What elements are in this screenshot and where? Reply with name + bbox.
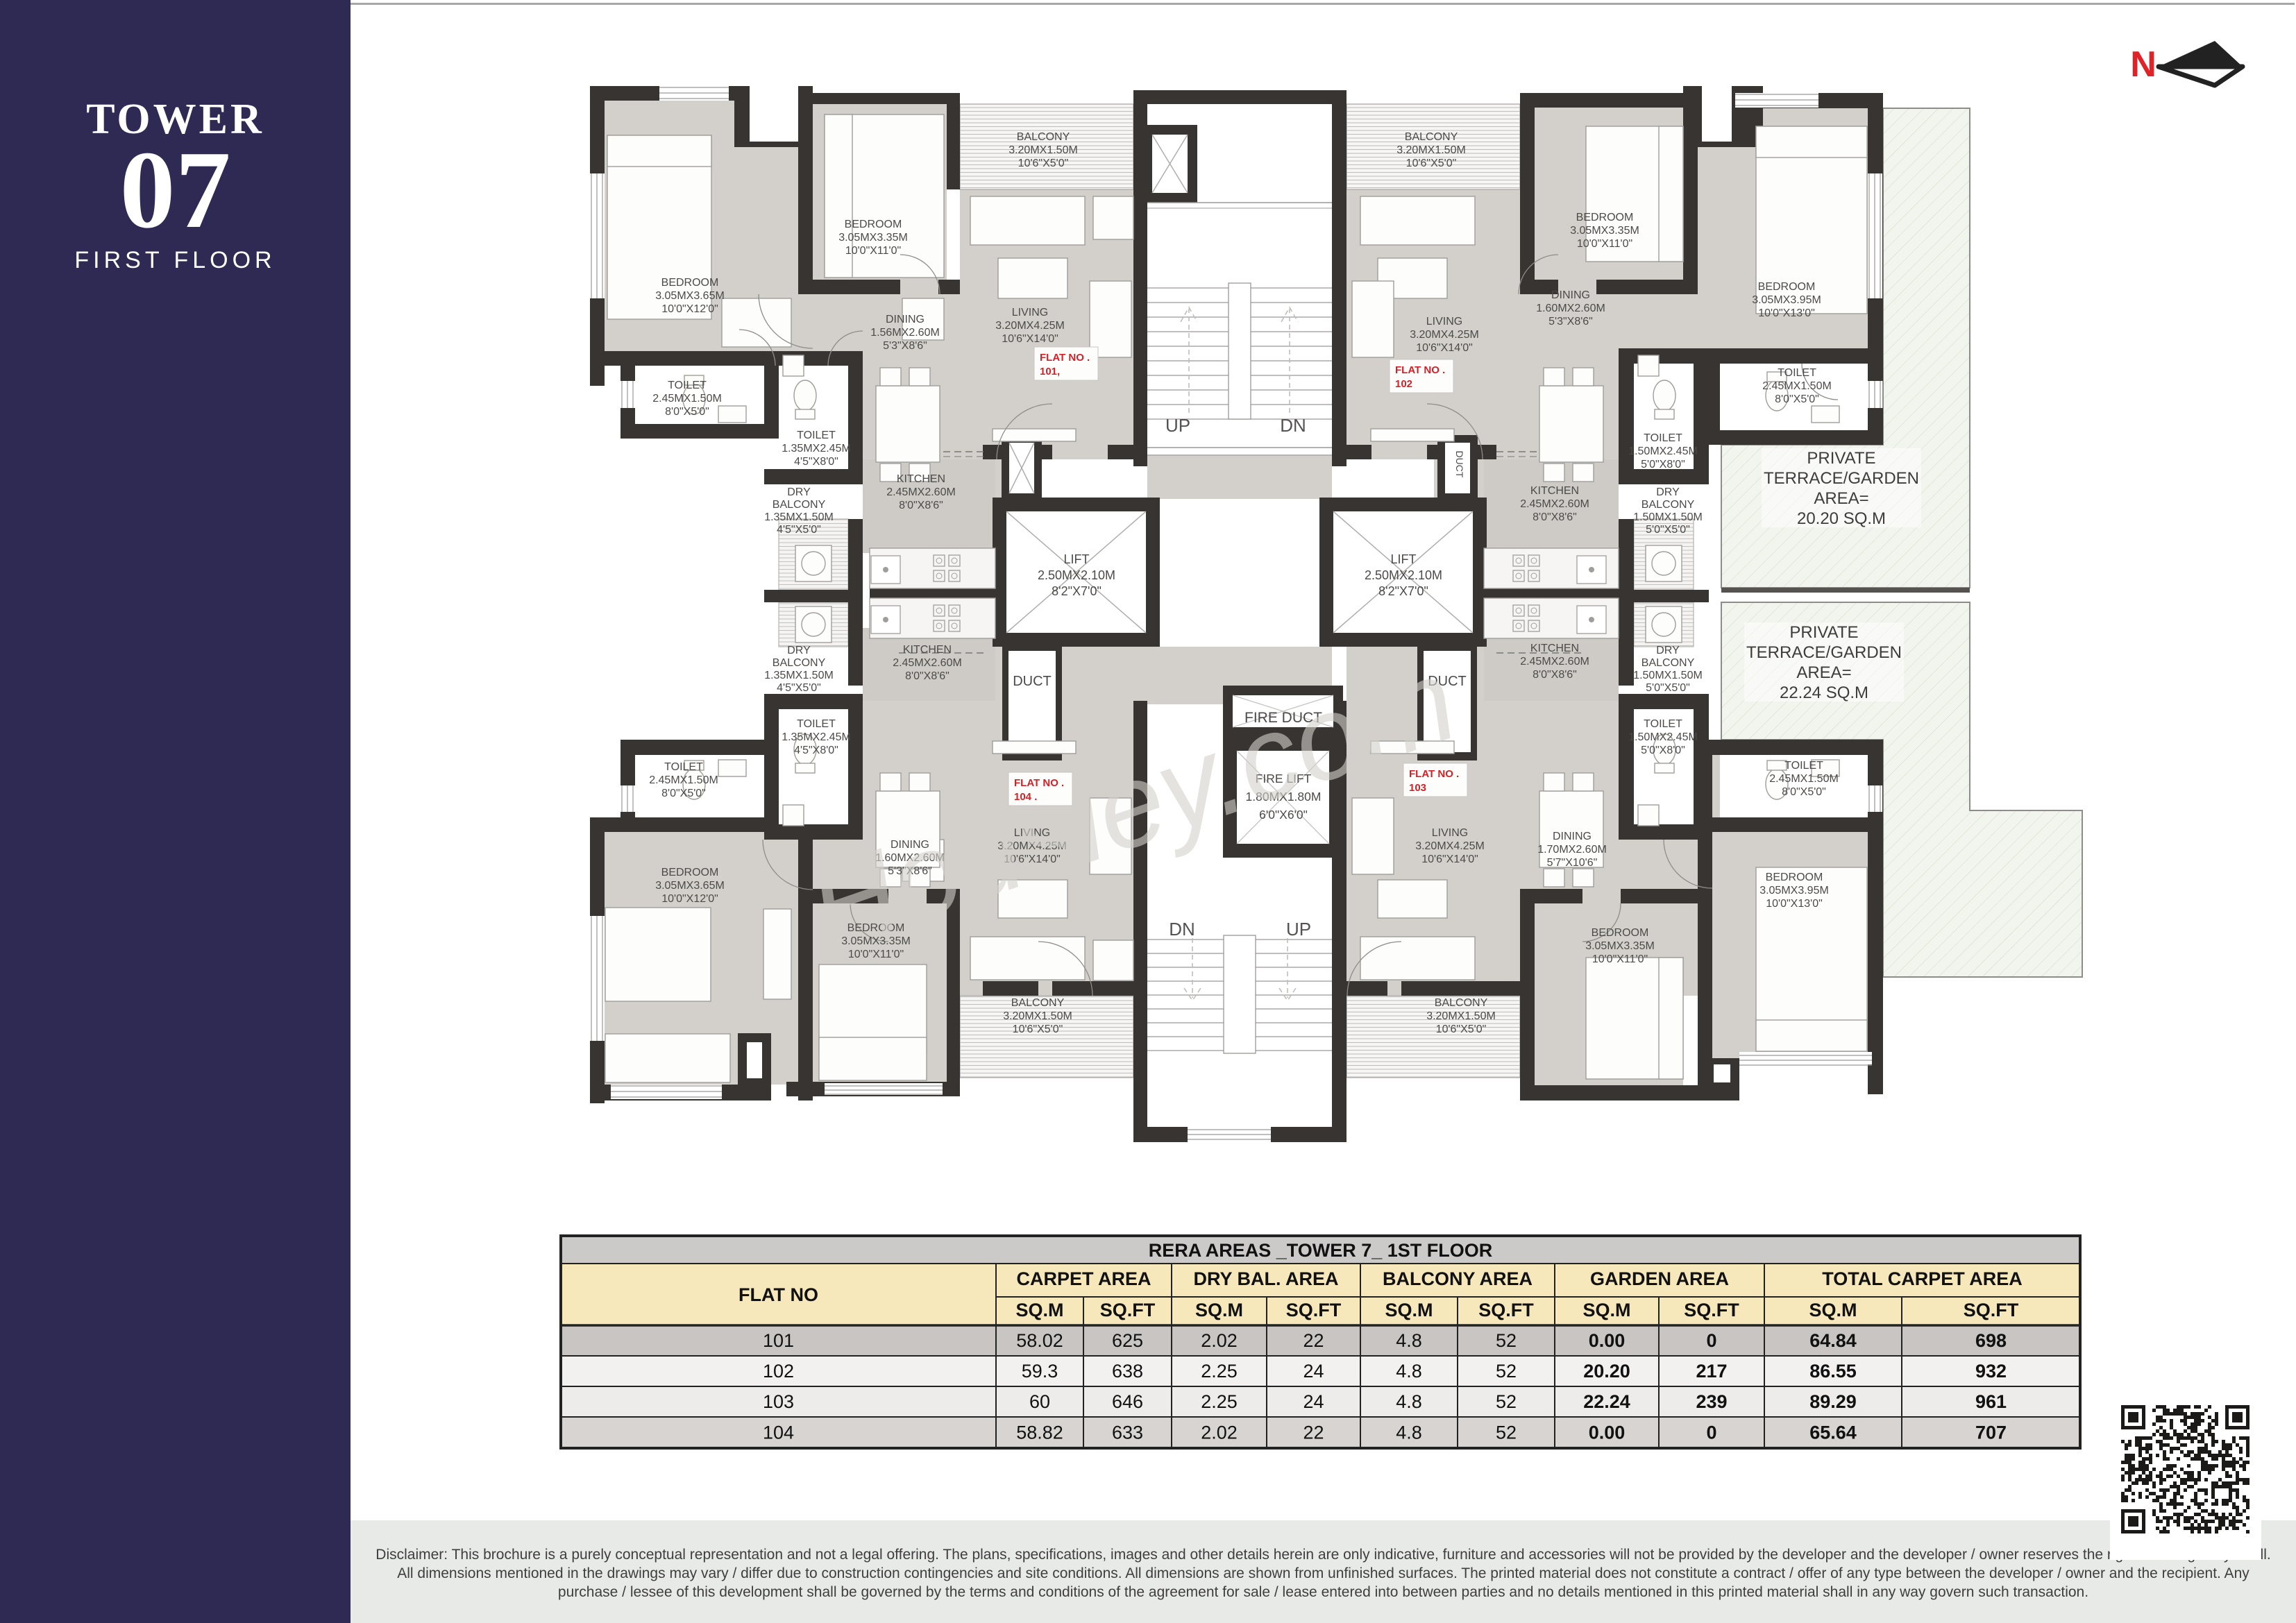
svg-text:2.45MX2.60M: 2.45MX2.60M [1520,656,1589,668]
svg-text:N: N [2130,44,2156,85]
svg-text:3.20MX4.25M: 3.20MX4.25M [1415,840,1485,852]
svg-text:103: 103 [763,1391,794,1412]
svg-text:2.25: 2.25 [1201,1391,1238,1412]
svg-text:TOILET: TOILET [797,430,836,441]
svg-text:2.45MX1.50M: 2.45MX1.50M [1762,380,1832,392]
svg-text:86.55: 86.55 [1809,1361,1857,1382]
svg-text:DINING: DINING [1551,289,1590,301]
svg-text:DRY: DRY [1656,486,1680,498]
svg-text:BEDROOM: BEDROOM [1758,281,1816,293]
svg-text:5'0"X5'0": 5'0"X5'0" [1646,524,1690,536]
svg-text:BALCONY: BALCONY [1017,131,1070,143]
svg-text:3.05MX3.35M: 3.05MX3.35M [1570,225,1639,237]
svg-text:10'6"X5'0": 10'6"X5'0" [1436,1023,1487,1035]
svg-text:2.45MX1.50M: 2.45MX1.50M [1769,773,1839,785]
svg-text:22.24: 22.24 [1583,1391,1630,1412]
svg-text:60: 60 [1029,1391,1050,1412]
svg-text:DUCT: DUCT [1013,674,1052,689]
svg-text:633: 633 [1112,1422,1143,1443]
svg-text:698: 698 [1975,1330,2007,1351]
svg-text:4'5"X8'0": 4'5"X8'0" [794,745,838,756]
svg-text:8'0"X5'0": 8'0"X5'0" [1775,393,1819,405]
svg-text:1.70MX2.60M: 1.70MX2.60M [1537,844,1607,856]
svg-text:TOILET: TOILET [1644,432,1682,444]
svg-text:DRY: DRY [787,486,811,498]
svg-text:LIVING: LIVING [1432,827,1468,839]
svg-text:10'0"X13'0": 10'0"X13'0" [1766,898,1823,910]
svg-text:8'0"X5'0": 8'0"X5'0" [665,406,709,418]
svg-text:SQ.FT: SQ.FT [1964,1300,2019,1320]
svg-text:2.02: 2.02 [1201,1422,1238,1443]
svg-text:932: 932 [1975,1361,2007,1382]
svg-text:BEDROOM: BEDROOM [1766,872,1823,883]
svg-text:707: 707 [1975,1422,2007,1443]
svg-text:DN: DN [1280,415,1306,436]
svg-text:10'0"X11'0": 10'0"X11'0" [1577,238,1632,250]
svg-text:DINING: DINING [886,314,925,325]
svg-text:TOILET: TOILET [668,380,707,391]
svg-text:961: 961 [1975,1391,2007,1412]
svg-text:GARDEN AREA: GARDEN AREA [1590,1268,1729,1289]
svg-text:TOTAL CARPET AREA: TOTAL CARPET AREA [1822,1268,2023,1289]
svg-text:3.05MX3.35M: 3.05MX3.35M [838,232,908,244]
svg-text:TOILET: TOILET [664,761,703,773]
svg-text:10'6"X14'0": 10'6"X14'0" [1002,333,1058,345]
svg-text:8'0"X8'6": 8'0"X8'6" [1533,669,1577,681]
svg-text:1.60MX2.60M: 1.60MX2.60M [1536,303,1605,314]
svg-text:0: 0 [1706,1330,1716,1351]
svg-text:52: 52 [1496,1330,1517,1351]
svg-text:SQ.M: SQ.M [1809,1300,1857,1320]
svg-text:SQ.M: SQ.M [1015,1300,1063,1320]
svg-text:4'5"X5'0": 4'5"X5'0" [777,524,821,536]
svg-text:PRIVATE: PRIVATE [1789,623,1858,642]
svg-text:3.05MX3.65M: 3.05MX3.65M [655,290,725,302]
svg-text:UP: UP [1165,415,1190,436]
svg-text:8'0"X5'0": 8'0"X5'0" [1782,786,1826,798]
svg-text:3.20MX4.25M: 3.20MX4.25M [1410,329,1479,341]
svg-text:1.56MX2.60M: 1.56MX2.60M [870,327,940,339]
svg-text:BEDROOM: BEDROOM [661,277,719,289]
svg-text:TOILET: TOILET [1644,718,1682,730]
svg-text:0.00: 0.00 [1589,1422,1626,1443]
svg-text:DUCT: DUCT [1454,451,1465,478]
svg-text:3.20MX1.50M: 3.20MX1.50M [1008,144,1078,156]
svg-text:TERRACE/GARDEN: TERRACE/GARDEN [1764,469,1919,488]
svg-text:5'7"X10'6": 5'7"X10'6" [1547,857,1598,869]
svg-text:89.29: 89.29 [1809,1391,1857,1412]
svg-text:4'5"X8'0": 4'5"X8'0" [794,456,838,468]
svg-text:1.35MX2.45M: 1.35MX2.45M [782,443,851,454]
svg-text:DINING: DINING [1553,831,1592,842]
svg-text:AREA=: AREA= [1814,489,1868,508]
svg-text:SQ.FT: SQ.FT [1100,1300,1156,1320]
svg-text:1.35MX1.50M: 1.35MX1.50M [764,511,834,523]
svg-text:5'3"X8'6": 5'3"X8'6" [883,340,927,352]
svg-text:24: 24 [1303,1361,1324,1382]
svg-text:24: 24 [1303,1391,1324,1412]
svg-text:1.35MX2.45M: 1.35MX2.45M [782,731,851,743]
svg-text:KITCHEN: KITCHEN [903,644,952,656]
svg-text:BALCONY: BALCONY [1641,657,1695,669]
svg-text:3.20MX1.50M: 3.20MX1.50M [1396,144,1466,156]
svg-text:10'0"X12'0": 10'0"X12'0" [661,893,718,905]
svg-text:10'0"X12'0": 10'0"X12'0" [661,303,718,315]
svg-text:BALCONY: BALCONY [1641,499,1695,511]
svg-text:20.20: 20.20 [1583,1361,1630,1382]
svg-text:52: 52 [1496,1422,1517,1443]
svg-text:8'0"X5'0": 8'0"X5'0" [661,788,706,799]
svg-text:DRY BAL. AREA: DRY BAL. AREA [1193,1268,1338,1289]
svg-text:BEDROOM: BEDROOM [1576,212,1634,223]
svg-text:PRIVATE: PRIVATE [1807,449,1875,468]
svg-text:BALCONY: BALCONY [773,499,826,511]
svg-text:SQ.FT: SQ.FT [1478,1300,1534,1320]
svg-text:FLAT NO .: FLAT NO . [1395,364,1445,376]
svg-text:52: 52 [1496,1391,1517,1412]
svg-text:5'0"X8'0": 5'0"X8'0" [1641,745,1685,756]
svg-text:SQ.M: SQ.M [1385,1300,1433,1320]
svg-text:1.50MX2.45M: 1.50MX2.45M [1628,731,1698,743]
svg-text:217: 217 [1696,1361,1727,1382]
svg-text:2.50MX2.10M: 2.50MX2.10M [1038,568,1115,582]
svg-text:59.3: 59.3 [1022,1361,1058,1382]
svg-text:104: 104 [763,1422,794,1443]
svg-text:BALCONY: BALCONY [1011,997,1065,1009]
svg-text:BEDROOM: BEDROOM [845,219,902,230]
svg-text:58.02: 58.02 [1016,1330,1063,1351]
svg-text:10'6"X5'0": 10'6"X5'0" [1018,158,1069,169]
svg-text:5'0"X8'0": 5'0"X8'0" [1641,459,1685,470]
svg-text:LIFT: LIFT [1063,552,1089,566]
svg-text:8'0"X8'6": 8'0"X8'6" [1533,511,1577,523]
svg-text:65.64: 65.64 [1809,1422,1857,1443]
svg-text:4.8: 4.8 [1396,1330,1422,1351]
svg-text:KITCHEN: KITCHEN [1530,643,1579,654]
svg-text:22: 22 [1303,1422,1324,1443]
svg-text:KITCHEN: KITCHEN [897,473,945,485]
svg-text:TOILET: TOILET [1778,367,1816,379]
svg-text:646: 646 [1112,1391,1143,1412]
svg-text:10'0"X11'0": 10'0"X11'0" [1592,953,1648,965]
svg-text:CARPET AREA: CARPET AREA [1016,1268,1151,1289]
svg-text:3.20MX4.25M: 3.20MX4.25M [995,320,1065,332]
svg-text:FLAT NO .: FLAT NO . [1040,352,1090,364]
svg-text:103: 103 [1409,782,1426,794]
svg-text:3.05MX3.95M: 3.05MX3.95M [1752,294,1821,306]
svg-text:22.24 SQ.M: 22.24 SQ.M [1780,683,1868,702]
svg-text:BALCONY: BALCONY [1435,997,1488,1009]
svg-text:4.8: 4.8 [1396,1361,1422,1382]
svg-text:52: 52 [1496,1361,1517,1382]
svg-text:2.45MX1.50M: 2.45MX1.50M [649,774,718,786]
svg-text:2.45MX2.60M: 2.45MX2.60M [886,486,956,498]
svg-text:0.00: 0.00 [1589,1330,1626,1351]
svg-text:102: 102 [1395,378,1412,390]
svg-text:10'6"X5'0": 10'6"X5'0" [1406,158,1457,169]
svg-text:KITCHEN: KITCHEN [1530,485,1579,497]
svg-text:2.25: 2.25 [1201,1361,1238,1382]
svg-text:SQ.M: SQ.M [1195,1300,1243,1320]
svg-text:3.05MX3.35M: 3.05MX3.35M [1585,940,1655,952]
svg-text:2.45MX1.50M: 2.45MX1.50M [652,393,722,405]
svg-text:3.20MX1.50M: 3.20MX1.50M [1426,1010,1496,1022]
svg-text:0: 0 [1706,1422,1716,1443]
svg-text:239: 239 [1696,1391,1727,1412]
svg-text:5'0"X5'0": 5'0"X5'0" [1646,682,1690,694]
svg-text:UP: UP [1286,919,1311,940]
svg-text:3.05MX3.95M: 3.05MX3.95M [1759,885,1829,897]
svg-text:SQ.FT: SQ.FT [1684,1300,1739,1320]
svg-text:638: 638 [1112,1361,1143,1382]
svg-text:DN: DN [1169,919,1195,940]
svg-text:TERRACE/GARDEN: TERRACE/GARDEN [1746,643,1902,662]
svg-text:BALCONY: BALCONY [773,657,826,669]
svg-text:10'0"X13'0": 10'0"X13'0" [1758,307,1815,319]
svg-text:1.50MX1.50M: 1.50MX1.50M [1633,511,1703,523]
svg-text:22: 22 [1303,1330,1324,1351]
svg-text:BEDROOM: BEDROOM [1592,927,1649,939]
svg-text:2.02: 2.02 [1201,1330,1238,1351]
svg-text:58.82: 58.82 [1016,1422,1063,1443]
svg-text:2.50MX2.10M: 2.50MX2.10M [1365,568,1442,582]
svg-text:3.05MX3.65M: 3.05MX3.65M [655,880,725,892]
svg-text:8'0"X8'6": 8'0"X8'6" [899,500,943,511]
svg-text:RERA AREAS _TOWER 7_ 1ST FLOO: RERA AREAS _TOWER 7_ 1ST FLOOR [1149,1240,1493,1261]
svg-text:DRY: DRY [787,645,811,656]
svg-text:DRY: DRY [1656,645,1680,656]
svg-text:TOILET: TOILET [797,718,836,730]
svg-text:1.35MX1.50M: 1.35MX1.50M [764,670,834,681]
svg-text:LIVING: LIVING [1426,316,1462,328]
svg-text:10'6"X14'0": 10'6"X14'0" [1421,853,1478,865]
svg-text:10'6"X5'0": 10'6"X5'0" [1013,1023,1063,1035]
svg-text:10'6"X14'0": 10'6"X14'0" [1416,342,1473,354]
svg-text:101: 101 [763,1330,794,1351]
svg-text:101,: 101, [1040,366,1060,377]
svg-text:1.50MX2.45M: 1.50MX2.45M [1628,445,1698,457]
svg-text:4.8: 4.8 [1396,1391,1422,1412]
svg-text:BALCONY AREA: BALCONY AREA [1383,1268,1533,1289]
svg-text:5'3"X8'6": 5'3"X8'6" [1548,316,1593,328]
svg-text:BALCONY: BALCONY [1405,131,1458,143]
svg-text:1.50MX1.50M: 1.50MX1.50M [1633,670,1703,681]
svg-text:FLAT NO: FLAT NO [738,1284,818,1305]
svg-text:2.45MX2.60M: 2.45MX2.60M [1520,498,1589,510]
svg-text:625: 625 [1112,1330,1143,1351]
svg-text:10'0"X11'0": 10'0"X11'0" [845,245,901,257]
svg-text:SQ.M: SQ.M [1582,1300,1630,1320]
svg-text:8'2"X7'0": 8'2"X7'0" [1378,584,1428,598]
svg-text:64.84: 64.84 [1809,1330,1857,1351]
svg-text:20.20 SQ.M: 20.20 SQ.M [1797,509,1886,528]
svg-text:3.20MX1.50M: 3.20MX1.50M [1003,1010,1072,1022]
svg-text:2.45MX2.60M: 2.45MX2.60M [893,657,962,669]
svg-text:BEDROOM: BEDROOM [661,867,719,878]
svg-text:SQ.FT: SQ.FT [1286,1300,1342,1320]
svg-text:8'2"X7'0": 8'2"X7'0" [1052,584,1101,598]
svg-text:4.8: 4.8 [1396,1422,1422,1443]
svg-text:TOILET: TOILET [1784,760,1823,772]
svg-text:102: 102 [763,1361,794,1382]
svg-text:8'0"X8'6": 8'0"X8'6" [905,670,949,682]
svg-text:LIVING: LIVING [1012,307,1048,318]
svg-text:4'5"X5'0": 4'5"X5'0" [777,682,821,694]
svg-text:LIFT: LIFT [1390,552,1416,566]
svg-text:AREA=: AREA= [1796,663,1851,682]
